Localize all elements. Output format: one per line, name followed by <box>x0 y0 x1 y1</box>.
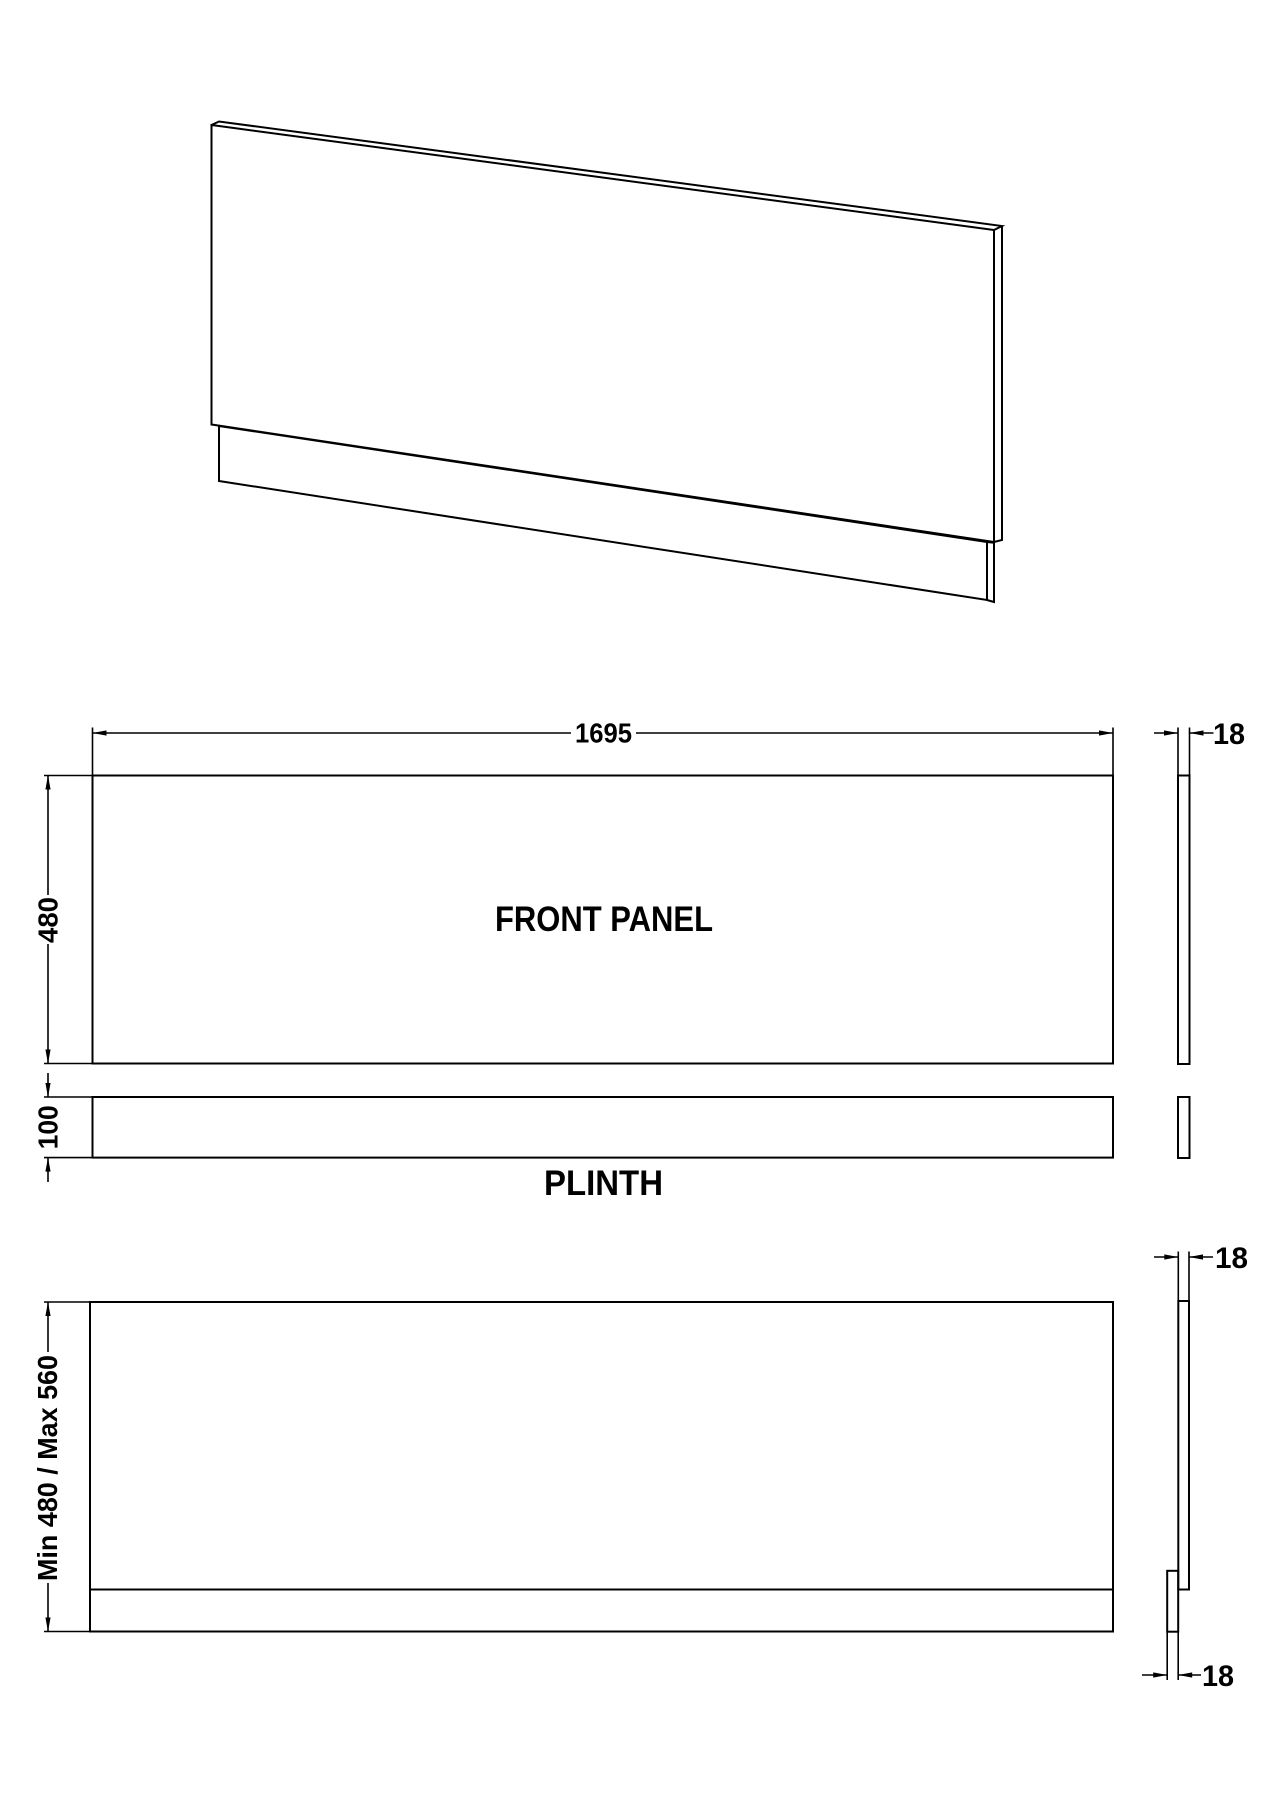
svg-text:FRONT PANEL: FRONT PANEL <box>495 900 713 939</box>
svg-text:18: 18 <box>1213 718 1245 751</box>
svg-text:1695: 1695 <box>575 718 632 749</box>
svg-text:18: 18 <box>1202 1660 1234 1693</box>
svg-text:Min 480 / Max 560: Min 480 / Max 560 <box>32 1355 63 1581</box>
svg-text:100: 100 <box>33 1105 64 1149</box>
svg-text:18: 18 <box>1215 1242 1248 1275</box>
svg-text:PLINTH: PLINTH <box>544 1164 663 1203</box>
svg-text:480: 480 <box>33 897 64 943</box>
